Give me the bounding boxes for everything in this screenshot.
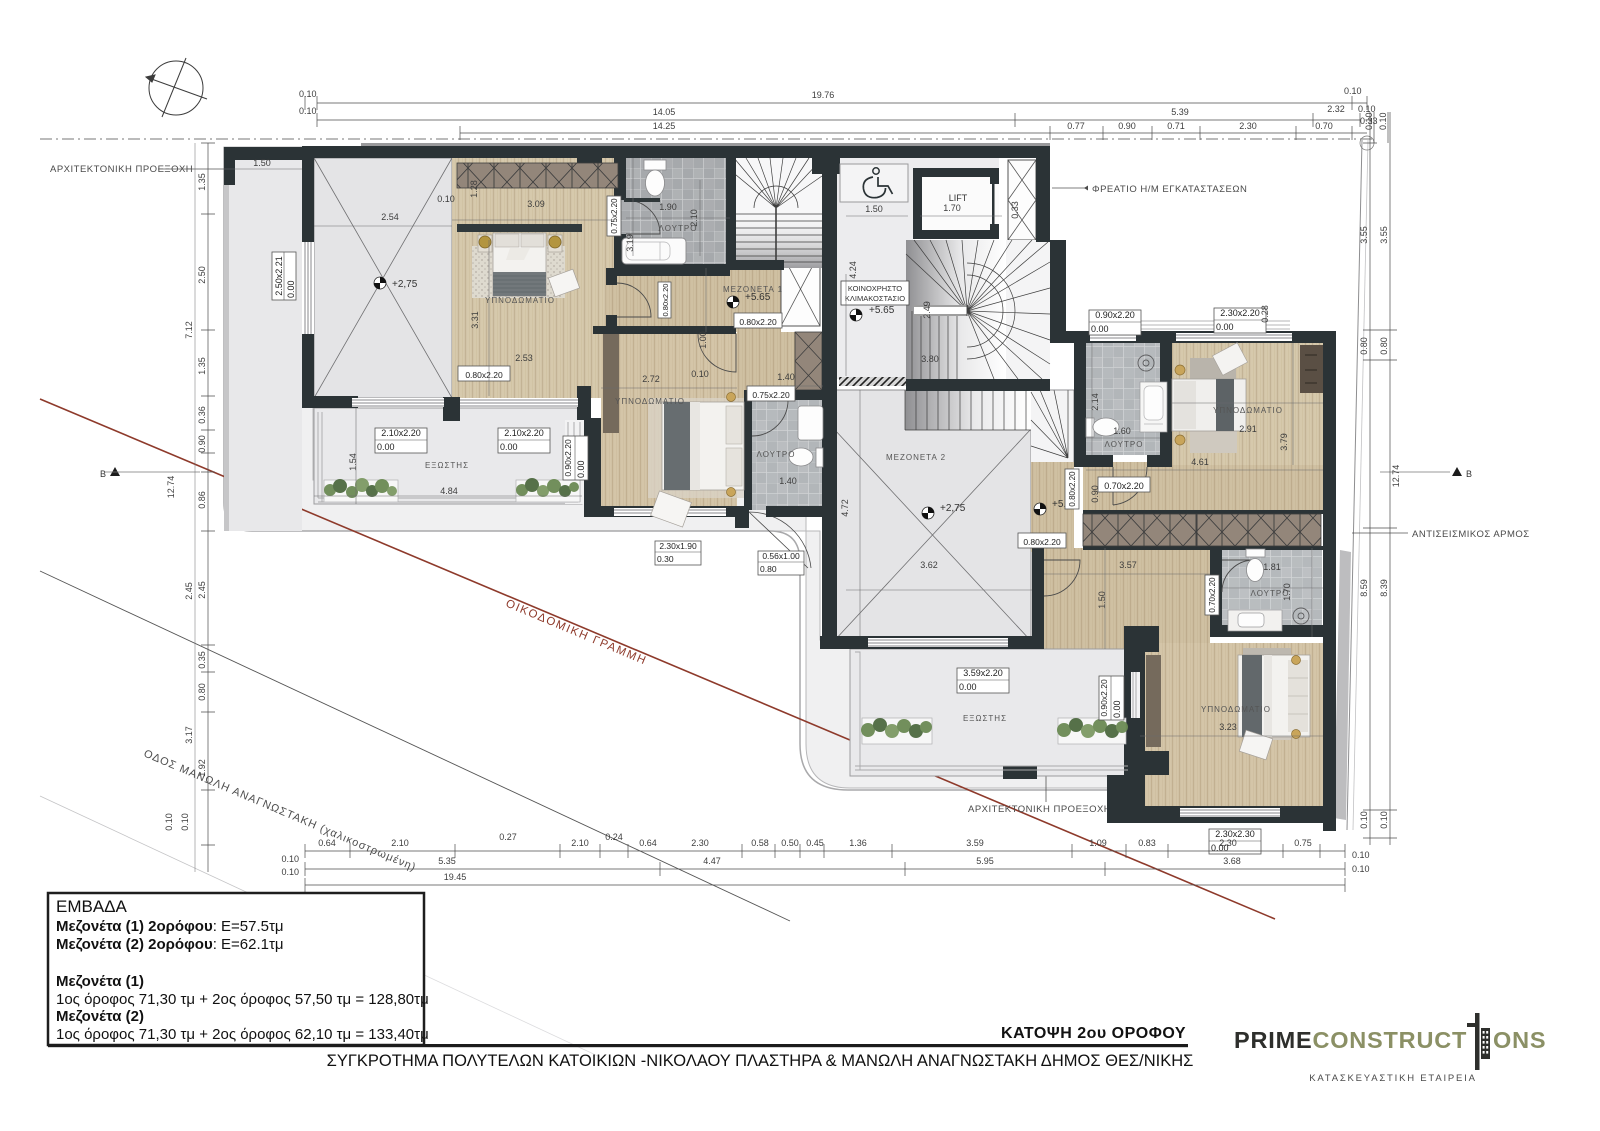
svg-text:0.71: 0.71 [1167,121,1185,131]
svg-text:+2,75: +2,75 [392,279,418,290]
svg-text:0.10: 0.10 [437,194,455,204]
svg-text:4.47: 4.47 [703,856,721,866]
svg-text:3.55: 3.55 [1359,226,1369,244]
svg-text:0.75x2.20: 0.75x2.20 [752,390,790,400]
svg-text:ΥΠΝΟΔΩΜΑΤΙΟ: ΥΠΝΟΔΩΜΑΤΙΟ [1201,705,1271,714]
svg-text:0.10: 0.10 [180,813,190,831]
svg-text:2.14: 2.14 [1090,393,1100,411]
svg-text:0.33: 0.33 [1010,201,1020,219]
svg-text:ΟΔΟΣ ΜΑΝΩΛΗ ΑΝΑΓΝΩΣΤΑΚΗ (χα: ΟΔΟΣ ΜΑΝΩΛΗ ΑΝΑΓΝΩΣΤΑΚΗ (χαλικοστρωμένη) [142,748,418,874]
svg-text:0.86: 0.86 [197,491,207,509]
svg-text:0.70x2.20: 0.70x2.20 [1208,577,1217,613]
svg-text:ΕΞΩΣΤΗΣ: ΕΞΩΣΤΗΣ [425,461,469,470]
svg-text:0.90x2.20: 0.90x2.20 [563,439,573,477]
svg-text:ΑΡΧΙΤΕΚΤΟΝΙΚΗ ΠΡΟΕΞΟΧΗ: ΑΡΧΙΤΕΚΤΟΝΙΚΗ ΠΡΟΕΞΟΧΗ [50,164,193,175]
svg-text:0.70: 0.70 [1315,121,1333,131]
svg-text:0.64: 0.64 [318,838,336,848]
svg-text:0.36: 0.36 [197,406,207,424]
svg-text:2.30x1.90: 2.30x1.90 [659,541,697,551]
svg-text:1.28: 1.28 [469,180,479,198]
svg-text:+5.65: +5.65 [869,305,895,316]
svg-text:0.80x2.20: 0.80x2.20 [465,370,503,380]
svg-text:ΑΡΧΙΤΕΚΤΟΝΙΚΗ ΠΡΟΕΞΟΧΗ: ΑΡΧΙΤΕΚΤΟΝΙΚΗ ΠΡΟΕΞΟΧΗ [968,804,1111,815]
svg-text:0.83: 0.83 [1138,838,1156,848]
svg-text:0.80x2.20: 0.80x2.20 [1023,537,1061,547]
svg-text:ΛΟΥΤΡΟ: ΛΟΥΤΡΟ [757,450,796,459]
svg-text:19.76: 19.76 [812,90,835,100]
svg-text:1.81: 1.81 [1263,562,1281,572]
svg-text:0.10: 0.10 [299,106,317,116]
svg-text:3.09: 3.09 [527,199,545,209]
svg-text:1.00: 1.00 [698,331,708,349]
svg-text:2.10: 2.10 [571,838,589,848]
svg-text:ΚΟΙΝΟΧΡΗΣΤΟ: ΚΟΙΝΟΧΡΗΣΤΟ [848,284,902,293]
svg-text:0.10: 0.10 [1352,850,1370,860]
svg-text:2.91: 2.91 [1239,424,1257,434]
svg-text:14.25: 14.25 [653,121,676,131]
svg-text:2.10x2.20: 2.10x2.20 [381,428,421,438]
svg-text:1.09: 1.09 [1089,838,1107,848]
svg-text:1.50: 1.50 [253,158,271,168]
svg-text:1ος όροφος 71,30 τμ + 2ος όροφ: 1ος όροφος 71,30 τμ + 2ος όροφος 62,10 τ… [56,1026,429,1043]
svg-text:0.50: 0.50 [781,838,799,848]
svg-text:0.00: 0.00 [500,442,518,452]
svg-text:0.80x2.20: 0.80x2.20 [661,284,670,317]
svg-text:0.30: 0.30 [657,554,674,564]
svg-text:1.60: 1.60 [1113,426,1131,436]
svg-text:3.79: 3.79 [1279,433,1289,451]
svg-text:0.00: 0.00 [959,682,977,692]
svg-text:0.80x2.20: 0.80x2.20 [1068,471,1077,507]
svg-text:14.05: 14.05 [653,107,676,117]
svg-text:0.80: 0.80 [760,564,777,574]
svg-text:1.54: 1.54 [348,453,358,471]
svg-text:0.10: 0.10 [1379,811,1389,829]
svg-text:0.70x2.20: 0.70x2.20 [1104,481,1144,491]
svg-text:2.49: 2.49 [922,301,932,319]
svg-text:0.90x2.20: 0.90x2.20 [1099,679,1109,717]
svg-text:0.75x2.20: 0.75x2.20 [610,198,619,234]
svg-text:0.27: 0.27 [499,832,517,842]
svg-text:0.10: 0.10 [1352,864,1370,874]
svg-text:2.30: 2.30 [1219,838,1237,848]
svg-text:5.35: 5.35 [438,856,456,866]
svg-text:0.10: 0.10 [1359,811,1369,829]
svg-text:ΚΑΤΟΨΗ 2ου ΟΡΟΦΟΥ: ΚΑΤΟΨΗ 2ου ΟΡΟΦΟΥ [1001,1025,1186,1042]
svg-text:0.24: 0.24 [605,832,623,842]
svg-text:0.00: 0.00 [377,442,395,452]
svg-text:3.80: 3.80 [921,354,939,364]
svg-text:0.90: 0.90 [1090,485,1100,503]
svg-text:ΥΠΝΟΔΩΜΑΤΙΟ: ΥΠΝΟΔΩΜΑΤΙΟ [485,296,555,305]
svg-text:0.80: 0.80 [1379,337,1389,355]
svg-text:3.57: 3.57 [1119,560,1137,570]
svg-text:0.28: 0.28 [1260,305,1270,323]
svg-text:8.39: 8.39 [1379,579,1389,597]
svg-text:2.10: 2.10 [391,838,409,848]
svg-text:1ος όροφος 71,30 τμ + 2ος όροφ: 1ος όροφος 71,30 τμ + 2ος όροφος 57,50 τ… [56,991,429,1008]
svg-text:ΦΡΕΑΤΙΟ Η/Μ ΕΓΚΑΤΑΣΤΑΣΕΩΝ: ΦΡΕΑΤΙΟ Η/Μ ΕΓΚΑΤΑΣΤΑΣΕΩΝ [1092,184,1247,195]
svg-text:2.32: 2.32 [1327,104,1345,114]
svg-text:+2,75: +2,75 [940,503,966,514]
svg-text:1.90: 1.90 [659,202,677,212]
svg-text:0.77: 0.77 [1067,121,1085,131]
svg-text:3.62: 3.62 [920,560,938,570]
svg-text:ΑΝΤΙΣΕΙΣΜΙΚΟΣ ΑΡΜΟΣ: ΑΝΤΙΣΕΙΣΜΙΚΟΣ ΑΡΜΟΣ [1412,529,1530,540]
svg-text:Μεζονέτα (1): Μεζονέτα (1) [56,973,144,990]
svg-text:0.00: 0.00 [286,280,296,298]
svg-text:2.50x2.21: 2.50x2.21 [274,256,284,296]
svg-text:2.30x2.20: 2.30x2.20 [1220,308,1260,318]
svg-text:ΛΟΥΤΡΟ: ΛΟΥΤΡΟ [1105,440,1144,449]
svg-text:0.80: 0.80 [1359,337,1369,355]
svg-text:B: B [1466,469,1472,479]
svg-text:0.00: 0.00 [1216,322,1234,332]
svg-text:7.12: 7.12 [184,321,194,339]
svg-text:8.59: 8.59 [1359,579,1369,597]
svg-text:5.39: 5.39 [1171,107,1189,117]
svg-text:ΚΑΤΑΣΚΕΥΑΣΤΙΚΗ ΕΤΑΙΡΕΙΑ: ΚΑΤΑΣΚΕΥΑΣΤΙΚΗ ΕΤΑΙΡΕΙΑ [1309,1073,1477,1084]
svg-text:0.10: 0.10 [281,867,299,877]
svg-text:0.00: 0.00 [1091,324,1109,334]
svg-text:4.61: 4.61 [1191,457,1209,467]
svg-text:4.84: 4.84 [440,486,458,496]
svg-text:ONS: ONS [1493,1027,1546,1053]
svg-text:0.10: 0.10 [1364,112,1374,130]
svg-text:Μεζονέτα (1) 2ορόφου: E=57.5τμ: Μεζονέτα (1) 2ορόφου: E=57.5τμ [56,918,284,935]
svg-text:0.80: 0.80 [197,683,207,701]
svg-text:0.90: 0.90 [1118,121,1136,131]
svg-text:2.53: 2.53 [515,353,533,363]
svg-text:ΥΠΝΟΔΩΜΑΤΙΟ: ΥΠΝΟΔΩΜΑΤΙΟ [615,397,685,406]
svg-text:ΕΜΒΑΔΑ: ΕΜΒΑΔΑ [56,897,128,916]
svg-text:LIFT: LIFT [949,193,968,203]
svg-text:12.74: 12.74 [166,476,176,499]
svg-text:Μεζονέτα (2) 2ορόφου: E=62.1τμ: Μεζονέτα (2) 2ορόφου: E=62.1τμ [56,936,284,953]
svg-text:ΥΠΝΟΔΩΜΑΤΙΟ: ΥΠΝΟΔΩΜΑΤΙΟ [1213,406,1283,415]
svg-text:0.35: 0.35 [197,651,207,669]
svg-text:0.90: 0.90 [197,435,207,453]
svg-text:Μεζονέτα (2): Μεζονέτα (2) [56,1008,144,1025]
svg-text:1.40: 1.40 [779,476,797,486]
svg-text:+5.65: +5.65 [745,292,771,303]
svg-text:0.75: 0.75 [1294,838,1312,848]
svg-text:2.30: 2.30 [1239,121,1257,131]
svg-text:12.74: 12.74 [1391,465,1401,488]
svg-text:ΟΙΚΟΔΟΜΙΚΗ ΓΡΑΜΜΗ: ΟΙΚΟΔΟΜΙΚΗ ΓΡΑΜΜΗ [504,598,649,668]
svg-text:3.17: 3.17 [184,726,194,744]
svg-text:5.95: 5.95 [976,856,994,866]
svg-text:2.45: 2.45 [184,582,194,600]
svg-text:1.40: 1.40 [777,372,795,382]
svg-text:1.92: 1.92 [197,759,207,777]
svg-text:ΚΛΙΜΑΚΟΣΤΑΣΙΟ: ΚΛΙΜΑΚΟΣΤΑΣΙΟ [845,294,905,303]
svg-text:19.45: 19.45 [444,872,467,882]
svg-text:0.56x1.00: 0.56x1.00 [762,551,800,561]
svg-text:3.55: 3.55 [1379,226,1389,244]
svg-text:B: B [100,469,106,479]
svg-text:0.10: 0.10 [1344,86,1362,96]
svg-text:3.59: 3.59 [966,838,984,848]
svg-text:1.50: 1.50 [865,204,883,214]
svg-text:3.68: 3.68 [1223,856,1241,866]
svg-text:2.72: 2.72 [642,374,660,384]
svg-text:0.00: 0.00 [1112,700,1122,718]
svg-text:1.70: 1.70 [943,203,961,213]
svg-text:3.59x2.20: 3.59x2.20 [963,668,1003,678]
svg-text:1.35: 1.35 [197,357,207,375]
svg-text:0.10: 0.10 [691,369,709,379]
svg-text:1.36: 1.36 [849,838,867,848]
svg-text:2.54: 2.54 [381,212,399,222]
svg-text:0.80x2.20: 0.80x2.20 [739,317,777,327]
svg-text:0.00: 0.00 [576,460,586,478]
svg-text:0.90x2.20: 0.90x2.20 [1095,310,1135,320]
svg-text:1.70: 1.70 [1282,583,1292,601]
svg-text:ΜΕΖΟΝΕΤΑ 2: ΜΕΖΟΝΕΤΑ 2 [886,453,946,462]
svg-text:2.10x2.20: 2.10x2.20 [504,428,544,438]
svg-text:0.58: 0.58 [751,838,769,848]
svg-text:1.35: 1.35 [197,173,207,191]
svg-text:0.64: 0.64 [639,838,657,848]
svg-text:4.24: 4.24 [848,261,858,279]
svg-text:0.10: 0.10 [164,813,174,831]
svg-text:0.10: 0.10 [1378,112,1388,130]
svg-text:4.72: 4.72 [840,499,850,517]
svg-text:2.30: 2.30 [691,838,709,848]
svg-text:PRIMECONSTRUCT: PRIMECONSTRUCT [1234,1027,1467,1053]
svg-text:1.50: 1.50 [1097,591,1107,609]
svg-text:ΣΥΓΚΡΟΤΗΜΑ ΠΟΛΥΤΕΛΩΝ ΚΑΤΟΙΚΙΩΝ: ΣΥΓΚΡΟΤΗΜΑ ΠΟΛΥΤΕΛΩΝ ΚΑΤΟΙΚΙΩΝ -ΝΙΚΟΛΑΟΥ… [327,1052,1194,1070]
svg-text:2.50: 2.50 [197,266,207,284]
svg-text:ΕΞΩΣΤΗΣ: ΕΞΩΣΤΗΣ [963,714,1007,723]
svg-text:3.19: 3.19 [625,234,635,252]
svg-text:2.45: 2.45 [197,581,207,599]
svg-text:0.45: 0.45 [806,838,824,848]
svg-text:0.10: 0.10 [281,854,299,864]
svg-text:0.10: 0.10 [299,89,317,99]
svg-text:3.31: 3.31 [470,311,480,329]
svg-text:3.23: 3.23 [1219,722,1237,732]
